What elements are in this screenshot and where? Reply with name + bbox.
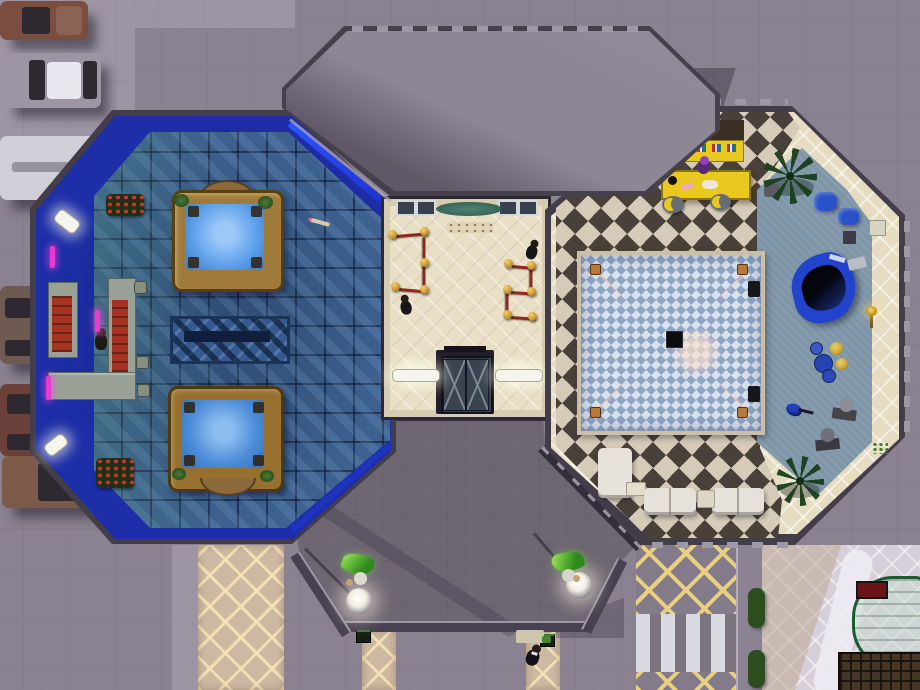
- armchair-blue[interactable]: [838, 208, 859, 225]
- bar-record: [668, 176, 677, 185]
- bartender-sim[interactable]: [694, 156, 712, 174]
- palm-plant: [776, 456, 824, 506]
- white-sofa[interactable]: [644, 488, 696, 515]
- spa-bar-counter[interactable]: [48, 372, 136, 400]
- elevator-lip: [444, 346, 486, 352]
- red-flower-planter: [96, 458, 134, 488]
- potted-plant: [258, 196, 273, 209]
- stool-moon-mask: [719, 195, 730, 208]
- neon-sconce: [95, 310, 100, 332]
- elevator-door: [466, 359, 489, 411]
- tub-seat: [188, 257, 199, 268]
- stanchion-post: [420, 285, 429, 294]
- crescent-stool[interactable]: [710, 194, 731, 210]
- sim-hand: [573, 575, 580, 582]
- trellis: [838, 652, 920, 690]
- palm-plant: [763, 148, 817, 204]
- corner-spotlight: [737, 264, 748, 275]
- bar-stool[interactable]: [136, 356, 149, 369]
- small-green-object: [542, 636, 551, 643]
- stanchion-post: [527, 261, 536, 270]
- ball-lamp[interactable]: [346, 588, 372, 614]
- fluorescent-light: [495, 369, 543, 382]
- corner-spotlight: [737, 407, 748, 418]
- sidewalk-top-strip: [135, 0, 295, 28]
- stanchion-post: [528, 312, 537, 321]
- drum-kit[interactable]: [808, 338, 850, 384]
- lamp-stem: [870, 314, 873, 328]
- cymbal: [836, 358, 848, 370]
- canopy-edge-trim: [352, 26, 642, 32]
- club-wall-cap: [904, 218, 910, 432]
- spa-bar-top-red: [112, 300, 128, 372]
- walkway-southwest: [198, 545, 284, 690]
- greeter-sim[interactable]: [546, 550, 590, 586]
- car-white: [3, 53, 101, 108]
- bar-sink: [702, 180, 718, 189]
- stanchion-post: [503, 310, 512, 319]
- corner-spotlight: [590, 407, 601, 418]
- car-window: [29, 60, 45, 100]
- edge-speaker[interactable]: [748, 281, 760, 297]
- coffee-table[interactable]: [626, 482, 646, 496]
- club-wall-cap: [652, 542, 788, 548]
- bar-stool[interactable]: [134, 281, 147, 294]
- porch-edge-bottom: [343, 621, 591, 632]
- porch-light-fixture: [356, 630, 371, 643]
- center-speaker[interactable]: [666, 331, 683, 348]
- greeter-sim[interactable]: [336, 552, 380, 590]
- door-mat: [447, 222, 493, 233]
- white-sofa[interactable]: [712, 488, 764, 515]
- armchair-blue[interactable]: [814, 192, 837, 211]
- stanchion-post: [527, 287, 536, 296]
- walkway-edge: [172, 545, 198, 690]
- tub-seat: [184, 455, 195, 466]
- lamp-head: [866, 306, 877, 316]
- green-debris: [872, 442, 888, 454]
- game-viewport: [0, 0, 920, 690]
- stanchion-post: [391, 282, 400, 291]
- stool-moon-mask: [671, 197, 683, 211]
- rug-center-stripe: [184, 331, 270, 342]
- neon-sconce: [46, 376, 51, 400]
- potted-plant: [260, 470, 274, 482]
- gold-wall-lamp[interactable]: [866, 306, 877, 330]
- stanchion-post: [420, 258, 429, 267]
- elevator-doors: [441, 356, 493, 414]
- cymbal: [830, 342, 843, 355]
- potted-plant: [174, 194, 189, 207]
- sim-head: [700, 156, 709, 165]
- piano-lid: [797, 261, 850, 314]
- crosswalk: [636, 614, 736, 672]
- statue[interactable]: [812, 425, 845, 454]
- car-window: [22, 7, 50, 34]
- sim-hand: [346, 579, 353, 586]
- statue[interactable]: [829, 394, 862, 424]
- sim-body: [354, 572, 367, 585]
- end-table[interactable]: [697, 490, 715, 508]
- hedge: [748, 650, 765, 688]
- corner-spotlight: [590, 264, 601, 275]
- window: [498, 200, 538, 216]
- bar-stool[interactable]: [137, 384, 150, 397]
- stanchion-post: [504, 259, 513, 268]
- pedestal-light: [869, 220, 886, 236]
- stanchion-post: [503, 285, 512, 294]
- car-hood: [56, 6, 82, 35]
- car-roof: [47, 62, 81, 99]
- window: [396, 200, 436, 216]
- tom-drum: [822, 369, 836, 383]
- stanchion-post: [420, 227, 429, 236]
- car-brown: [0, 1, 88, 40]
- shelter-sign: [856, 581, 888, 599]
- edge-speaker[interactable]: [748, 386, 760, 402]
- garland-decoration: [436, 202, 502, 216]
- car-window: [83, 61, 97, 99]
- hedge: [748, 588, 765, 628]
- stanchion-post: [388, 230, 397, 239]
- tub-seat: [253, 402, 264, 413]
- fluorescent-light: [392, 369, 440, 382]
- bartender-sim[interactable]: [92, 328, 110, 354]
- statue-pedestal: [843, 231, 856, 244]
- spa-bar-top-red: [52, 296, 72, 352]
- tub-seat: [251, 257, 262, 268]
- tub-seat: [184, 402, 195, 413]
- tub-seat: [188, 206, 199, 217]
- tub-seat: [253, 455, 264, 466]
- neon-sconce: [50, 246, 55, 268]
- crescent-stool[interactable]: [662, 196, 684, 213]
- bar-pink-item: [681, 183, 695, 191]
- red-flower-planter: [106, 194, 144, 216]
- snare-drum: [810, 342, 823, 355]
- elevator[interactable]: [436, 350, 494, 414]
- potted-plant: [172, 468, 186, 480]
- elevator-door: [443, 359, 466, 411]
